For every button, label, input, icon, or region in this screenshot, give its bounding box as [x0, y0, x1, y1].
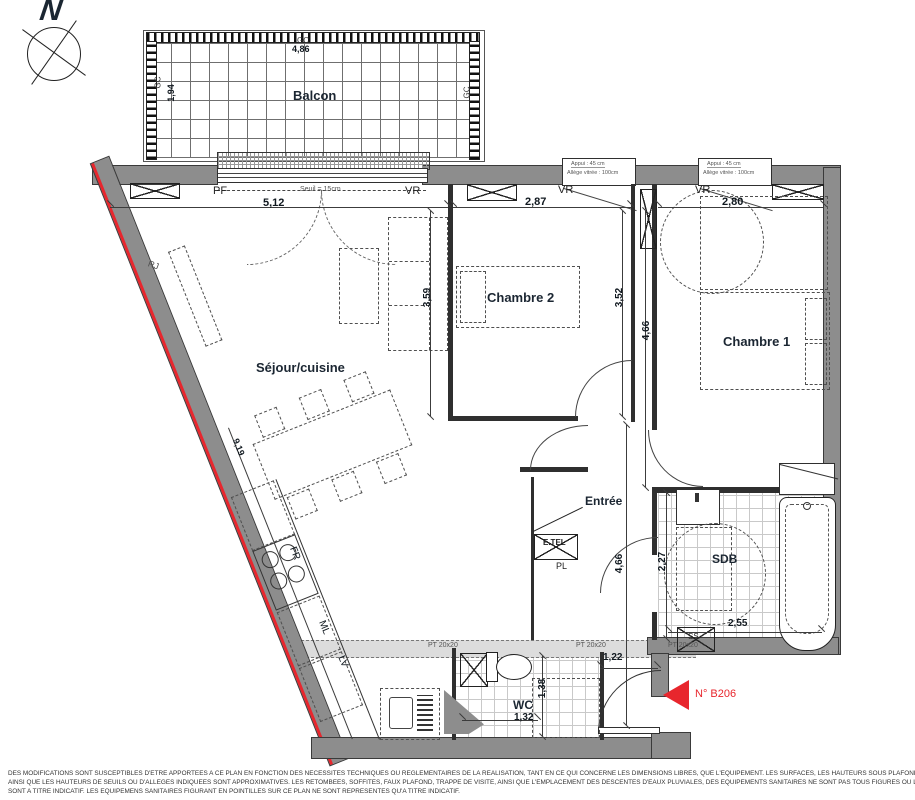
compass-icon [27, 27, 81, 81]
electrical-panel-label: E.TEL [543, 538, 566, 547]
unit-entry-arrow-icon [663, 680, 689, 710]
entrance-door-swing [598, 670, 661, 733]
coffee-table [339, 248, 379, 324]
balcony-label: Balcon [293, 88, 336, 103]
chambre2-window-glazing-note: Allège vitrée : 100cm [567, 170, 618, 176]
sdb-washbasin [676, 489, 720, 525]
sdb-left-wall-lower [652, 612, 657, 640]
disclaimer-line-3: SONT A TITRE INDICATIF. LES EQUIPEMENS S… [8, 788, 460, 797]
balcony-railing-left [146, 41, 157, 160]
bay-shutter-label: VR [405, 185, 420, 197]
dim-line-ch2-depth [622, 211, 623, 416]
balcony-left-code: GC [154, 77, 163, 89]
chambre2-dim-left: 3,59 [422, 288, 433, 307]
sejour-label: Séjour/cuisine [256, 360, 345, 375]
sdb-dim-width: 2,55 [728, 618, 747, 629]
entry-corner-wall [652, 733, 690, 758]
bay-dim: 5,12 [263, 197, 284, 209]
chambre1-window-dim: 2,80 [722, 196, 743, 208]
chambre1-pillow [805, 298, 827, 340]
chambre1-label: Chambre 1 [723, 334, 790, 349]
chambre1-window: Appui : 45 cm Allège vitrée : 100cm [698, 158, 772, 186]
chambre2-shutter-label: VR [558, 184, 573, 196]
bay-sill-note: Seuil = 15cm [300, 186, 341, 193]
unit-number-label: N° B206 [695, 688, 736, 700]
sejour-radiator [130, 183, 180, 199]
sejour-entree-door-swing [530, 425, 588, 470]
entree-door-dim: 1,22 [603, 652, 622, 663]
closet-label: PL [556, 561, 567, 571]
beam-label-mid: PT 20x20 [576, 642, 606, 649]
beam-label-right: PT 20x20 [668, 642, 698, 649]
sdb-label: SDB [712, 552, 737, 566]
chambre1-wardrobe [700, 196, 828, 290]
chambre2-window-dim: 2,87 [525, 196, 546, 208]
chambre2-door-swing [575, 360, 632, 417]
chambre2-bottom-wall [448, 416, 578, 421]
water-heater [380, 688, 440, 740]
chambre1-door-swing [648, 430, 703, 487]
balcony-railing-right [469, 41, 480, 160]
disclaimer-line-2: AINSI QUE LES HAUTEURS DE SEUILS OU D'AL… [8, 779, 915, 788]
exterior-wall-top-3 [634, 166, 698, 184]
wc-dim-width: 1,32 [514, 712, 533, 723]
chambre2-dim-right: 3,52 [614, 288, 625, 307]
bay-window-frame [217, 168, 428, 183]
chambre1-window-glazing-note: Allège vitrée : 100cm [703, 170, 754, 176]
sdb-cabinet [779, 463, 835, 495]
dim-line-entry-door [600, 668, 658, 669]
sofa [388, 217, 448, 351]
entree-label: Entrée [585, 494, 622, 508]
windows-duct [640, 189, 657, 249]
balcony-left-dim: 1,94 [166, 84, 176, 102]
balcony-top-dim: 4,86 [292, 44, 310, 54]
beam-label-left: PT 20x20 [428, 642, 458, 649]
dim-line-sejour-depth [430, 211, 431, 416]
entree-dim-height: 4,66 [614, 554, 625, 573]
floor-plan: N GC 4,86 Balcon GC 1,94 GC Appui : 45 c… [0, 0, 915, 800]
chambre1-dim-left: 4,66 [641, 321, 652, 340]
balcony-right-code: GC [463, 87, 472, 99]
chambre2-window-sill-note: Appui : 45 cm [571, 161, 605, 168]
chambre2-pillow [460, 271, 486, 323]
sdb-dim-depth: 2,27 [657, 552, 668, 571]
bathtub [779, 497, 836, 651]
chambre2-label: Chambre 2 [487, 290, 554, 305]
chambre1-pillow [805, 343, 827, 385]
chambre1-window-sill-note: Appui : 45 cm [707, 161, 741, 168]
bay-door-swing-left [247, 190, 322, 265]
balcony-railing-top [146, 32, 480, 43]
chambre1-shutter-label: VR [695, 184, 710, 196]
wc-dim-depth: 1,38 [537, 679, 548, 698]
dim-line-entree [626, 425, 627, 725]
exterior-wall-top-2 [423, 166, 562, 184]
toilet-bowl [496, 654, 532, 680]
dim-line-hall [645, 211, 646, 487]
compass-north-label: N [38, 0, 64, 28]
closet-door-line [533, 507, 583, 532]
chambre2-window: Appui : 45 cm Allège vitrée : 100cm [562, 158, 636, 186]
sejour-slant-dim: 9,19 [231, 437, 247, 457]
sdb-turning-circle [664, 523, 766, 625]
sdb-duct-label: SS [688, 632, 699, 641]
chambre2-radiator [467, 184, 517, 201]
disclaimer-line-1: DES MODIFICATIONS SONT SUSCEPTIBLES D'ET… [8, 770, 915, 779]
wc-duct [460, 653, 488, 687]
hall-door-swing [600, 537, 658, 593]
bay-label: PF [213, 185, 227, 197]
wc-label: WC [513, 698, 533, 712]
chambre2-left-wall [448, 184, 453, 420]
